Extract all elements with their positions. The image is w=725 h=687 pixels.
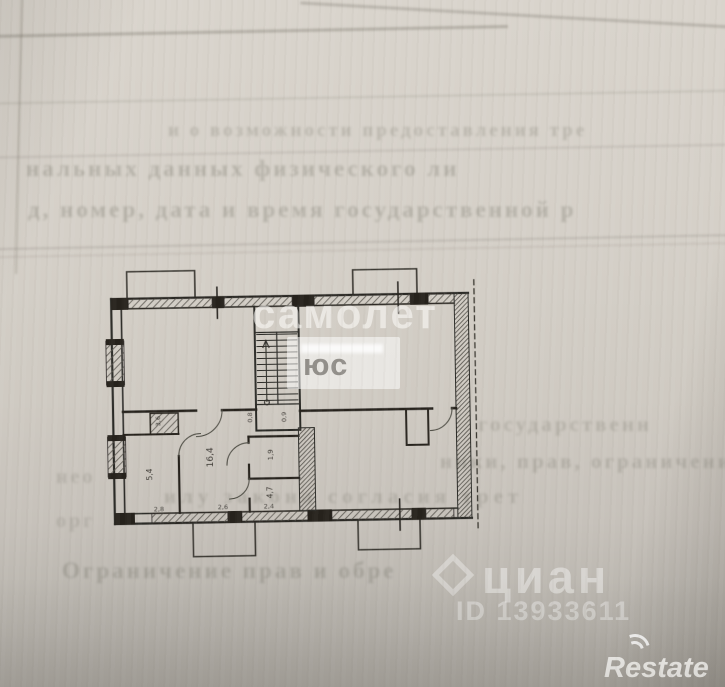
dim-label: 2,4 <box>264 502 274 510</box>
floor-plan: 3,6 5,4 16,4 1,9 4,7 2,8 2,6 2,4 0,8 0,9 <box>0 0 725 687</box>
room-label: 16,4 <box>206 447 216 467</box>
room-label: 3,6 <box>154 416 162 426</box>
floor-plan-photo: и о возможности предоставления тре нальн… <box>0 0 725 687</box>
balcony-bottom-left <box>193 522 256 557</box>
top-windows <box>111 281 455 320</box>
interior-walls <box>123 406 458 514</box>
balcony-top-left <box>127 271 195 299</box>
dim-label: 2,6 <box>218 503 228 511</box>
staircase <box>254 306 300 431</box>
balcony-top-right <box>353 269 417 295</box>
room-label: 1,9 <box>267 449 275 460</box>
bottom-windows <box>115 498 454 535</box>
dim-label: 0,8 <box>246 412 254 422</box>
room-label: 4,7 <box>265 486 274 498</box>
vent-shaft <box>298 428 315 511</box>
dim-label: 0,9 <box>280 412 288 422</box>
party-wall <box>454 293 472 518</box>
dim-label: 2,8 <box>154 505 164 513</box>
balcony-bottom-right <box>358 519 421 550</box>
stair-direction-arrow <box>263 340 270 404</box>
room-label: 5,4 <box>145 468 154 480</box>
dashed-extension <box>474 280 478 530</box>
